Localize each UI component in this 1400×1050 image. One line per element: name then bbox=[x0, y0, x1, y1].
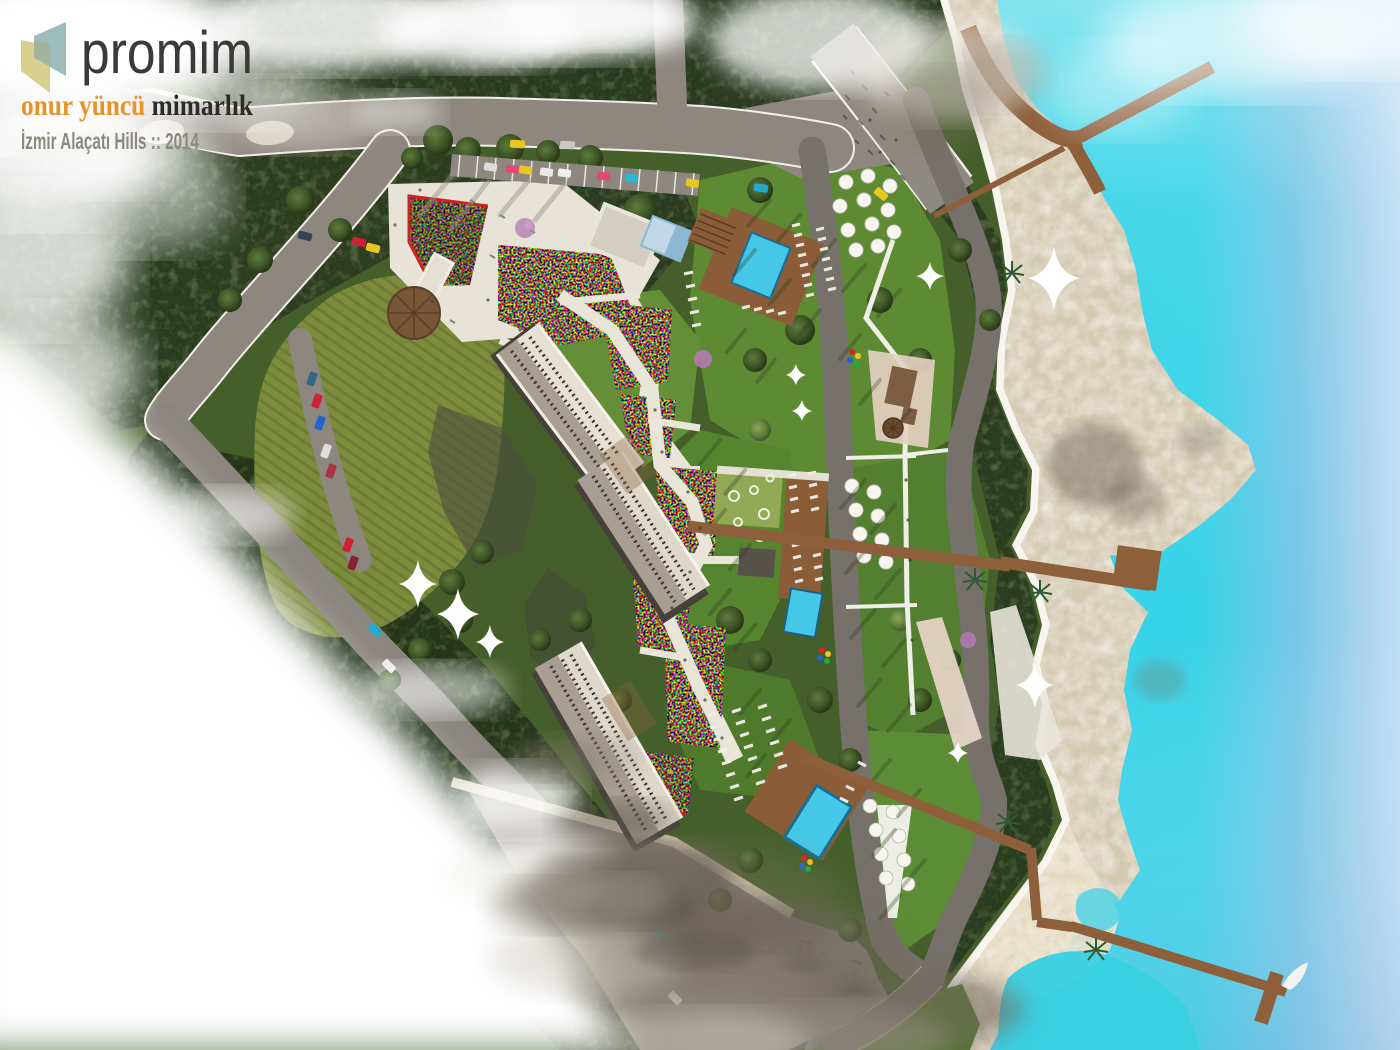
svg-text:onur yüncü mimarlık: onur yüncü mimarlık bbox=[21, 89, 253, 122]
svg-text:promim: promim bbox=[81, 19, 253, 86]
svg-text:İzmir Alaçatı Hills :: 2014: İzmir Alaçatı Hills :: 2014 bbox=[21, 128, 199, 154]
